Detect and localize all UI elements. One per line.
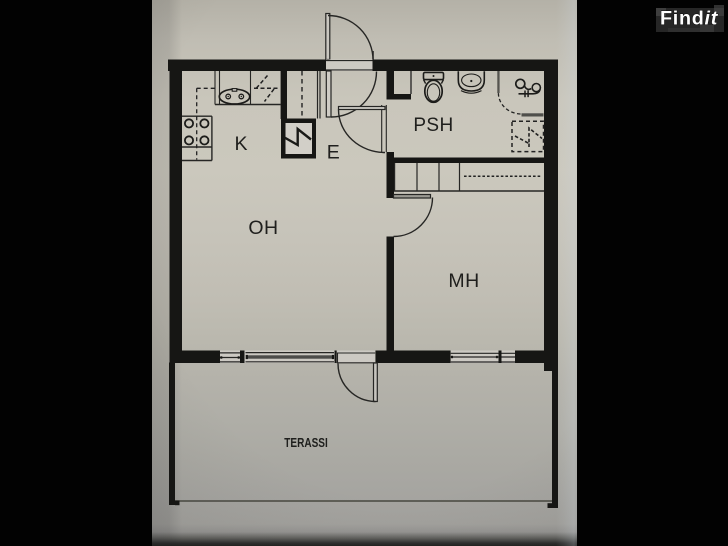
svg-text:Findit: Findit — [660, 8, 719, 30]
